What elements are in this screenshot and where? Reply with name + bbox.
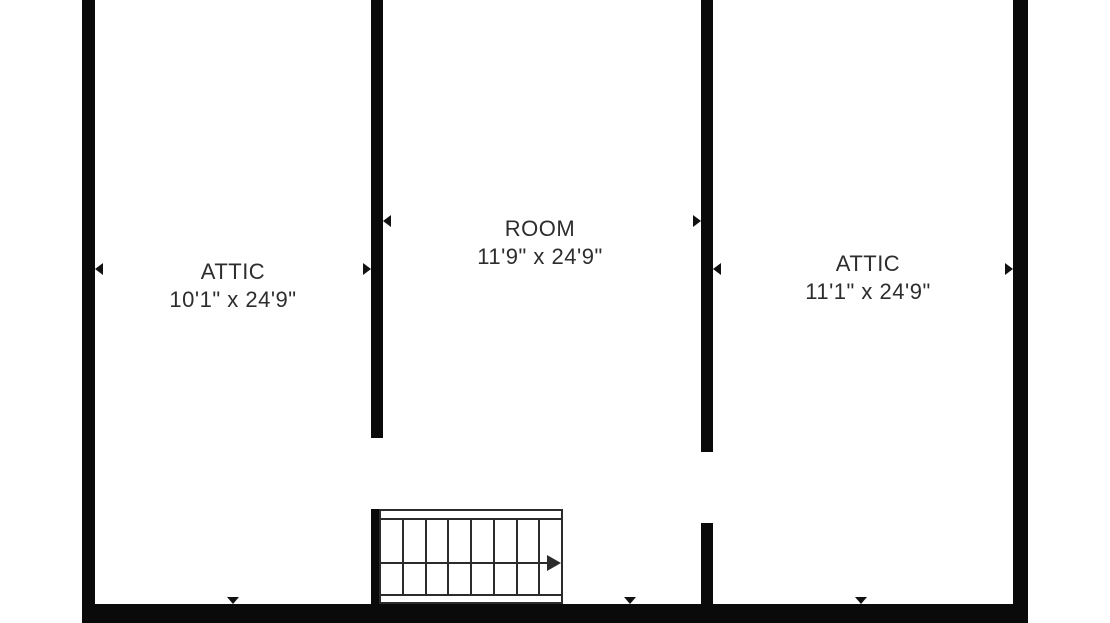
room-dimensions: 10'1" x 24'9" (103, 286, 363, 314)
room-label-room-center: ROOM 11'9" x 24'9" (410, 215, 670, 271)
stair-tread (404, 520, 427, 594)
dimension-arrow-down-icon (624, 597, 636, 604)
interior-wall-right-upper (701, 0, 713, 452)
stair-tread (472, 520, 495, 594)
stair-treads (381, 520, 561, 594)
stair-tread (518, 520, 541, 594)
room-dimensions: 11'9" x 24'9" (410, 243, 670, 271)
dimension-arrow-right-icon (363, 263, 371, 275)
stair-tread (427, 520, 450, 594)
dimension-arrow-down-icon (227, 597, 239, 604)
stair-tread (381, 520, 404, 594)
room-label-attic-right: ATTIC 11'1" x 24'9" (738, 250, 998, 306)
dimension-arrow-right-icon (693, 215, 701, 227)
stair-direction-arrow-icon (547, 555, 561, 571)
staircase (379, 509, 563, 604)
room-name: ATTIC (103, 258, 363, 286)
room-dimensions: 11'1" x 24'9" (738, 278, 998, 306)
room-name: ATTIC (738, 250, 998, 278)
stair-direction-line (381, 562, 547, 564)
interior-wall-right-lower (701, 523, 713, 604)
exterior-wall-left (82, 0, 95, 623)
floorplan-canvas: ATTIC 10'1" x 24'9" ROOM 11'9" x 24'9" A… (0, 0, 1110, 623)
stair-tread (449, 520, 472, 594)
stair-landing-bottom (381, 594, 561, 602)
exterior-wall-right (1013, 0, 1028, 623)
dimension-arrow-left-icon (383, 215, 391, 227)
dimension-arrow-right-icon (1005, 263, 1013, 275)
interior-wall-left-upper (371, 0, 383, 438)
dimension-arrow-left-icon (95, 263, 103, 275)
stair-landing-top (381, 511, 561, 520)
room-label-attic-left: ATTIC 10'1" x 24'9" (103, 258, 363, 314)
exterior-wall-bottom (82, 604, 1028, 623)
room-name: ROOM (410, 215, 670, 243)
dimension-arrow-down-icon (855, 597, 867, 604)
dimension-arrow-left-icon (713, 263, 721, 275)
stair-tread (495, 520, 518, 594)
